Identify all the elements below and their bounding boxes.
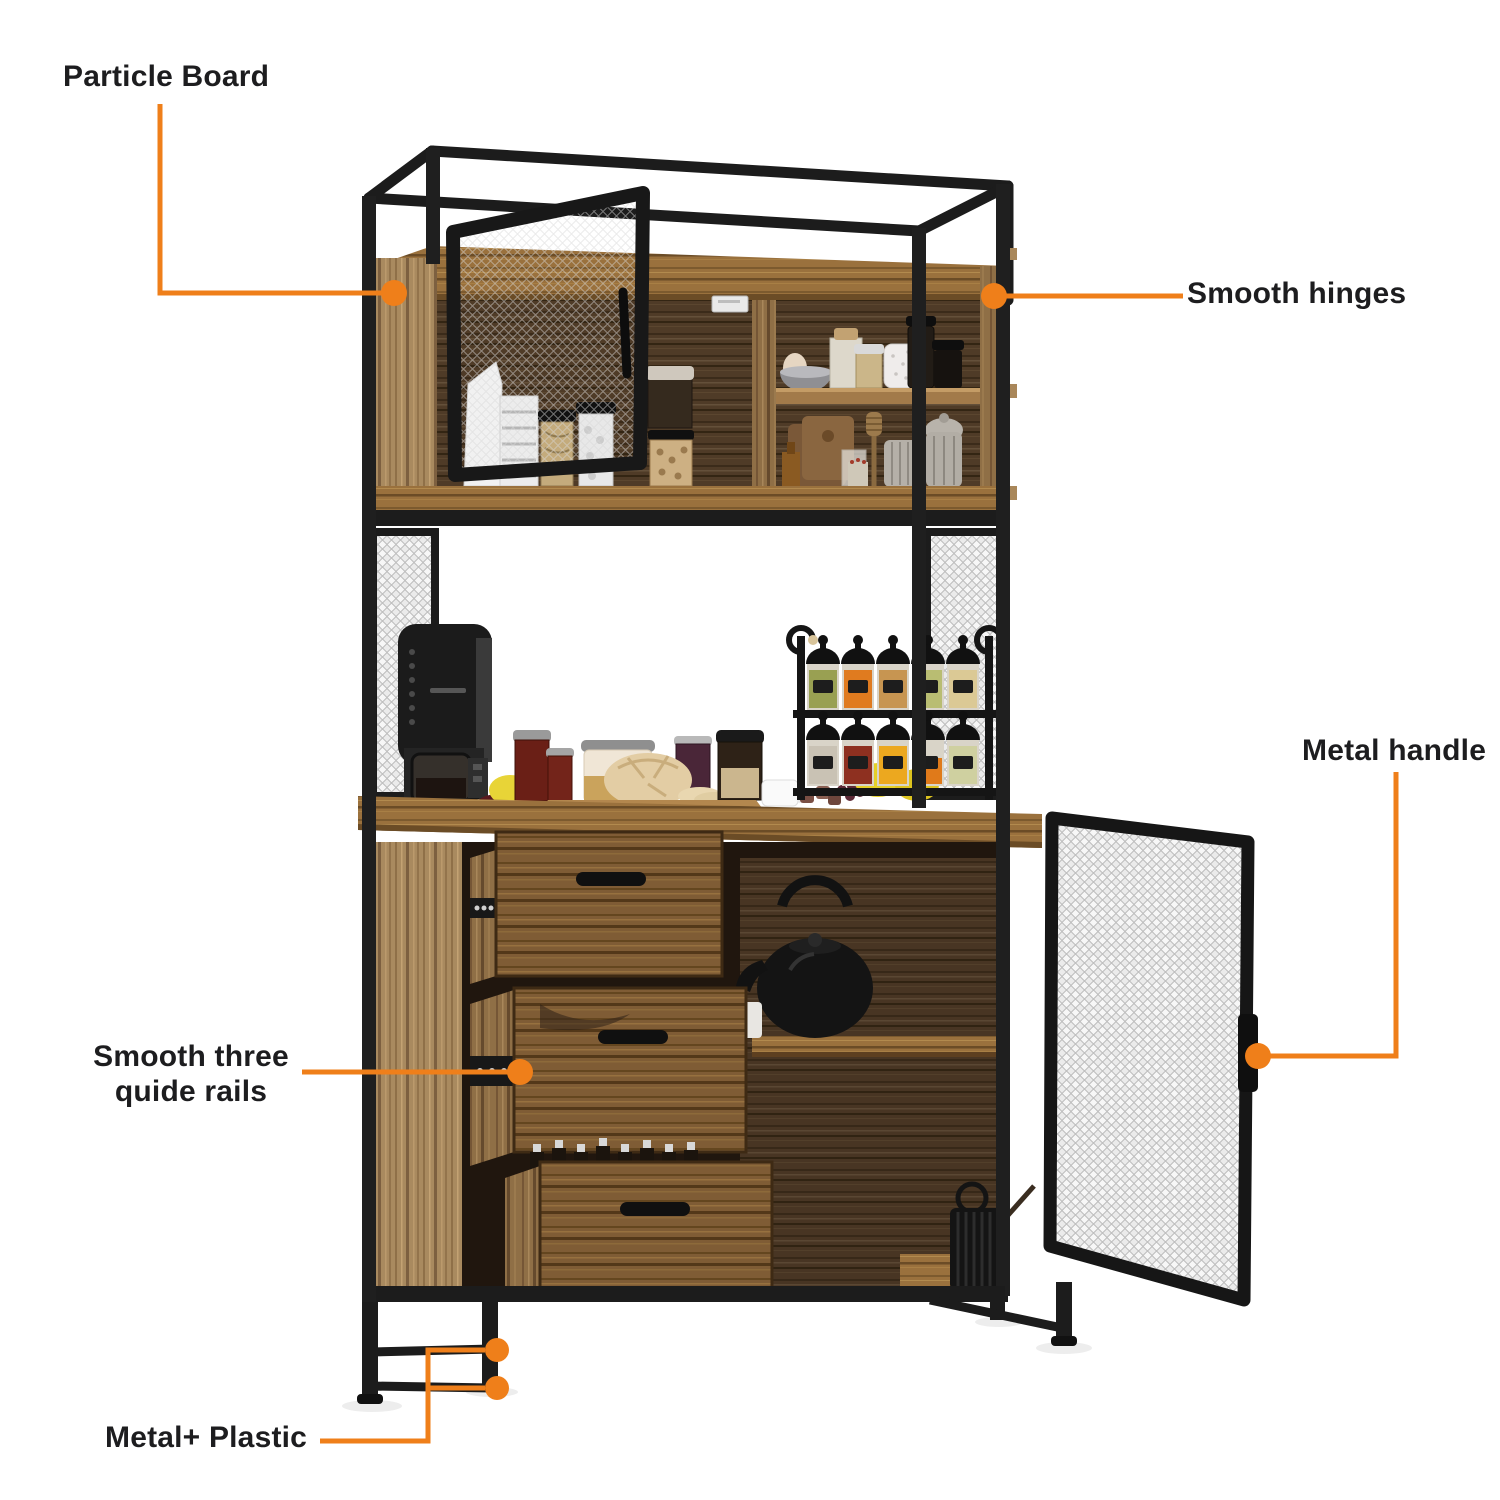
metal-plastic-dot-2 — [485, 1376, 509, 1400]
drawer-3-front — [540, 1162, 772, 1292]
drawer-1 — [470, 832, 722, 984]
product-render — [0, 0, 1500, 1500]
metal-handle-line — [1270, 772, 1396, 1056]
particle-board-dot — [381, 280, 407, 306]
smooth-hinges-dot — [981, 283, 1007, 309]
metal-plastic-dot-1 — [485, 1338, 509, 1362]
callout-label-metal-handle: Metal handle — [1302, 734, 1486, 769]
coffee-maker — [396, 624, 494, 808]
metal-plastic-line — [320, 1350, 485, 1441]
callout-label-metal-plastic: Metal+ Plastic — [105, 1421, 307, 1456]
hutch-divider — [752, 300, 776, 488]
base-left-panel — [362, 842, 462, 1292]
guide-rails-line1: Smooth three — [93, 1040, 289, 1073]
drawer-3-box-side — [505, 1166, 540, 1292]
hinge-hardware — [712, 296, 748, 312]
drawer-1-front — [496, 832, 722, 976]
callout-label-guide-rails: Smooth three quide rails — [80, 1040, 302, 1109]
drawer-3 — [505, 1138, 772, 1292]
spice-rack — [789, 628, 1006, 800]
guide-rails-line2: quide rails — [115, 1075, 267, 1108]
drawer-1-handle — [576, 872, 646, 886]
upper-mesh-door — [453, 193, 643, 475]
particle-board-line — [160, 104, 383, 293]
drawer-3-handle — [620, 1202, 690, 1216]
guide-rails-dot — [507, 1059, 533, 1085]
base-bottom-bar — [362, 1286, 1008, 1302]
upper-door-handle — [623, 292, 627, 374]
callout-label-smooth-hinges: Smooth hinges — [1187, 277, 1406, 312]
lower-mesh-door — [1050, 818, 1258, 1300]
product-annotation-image: Particle Board Smooth hinges Metal handl… — [0, 0, 1500, 1500]
mug — [762, 780, 798, 806]
floor-shadows — [342, 1317, 1092, 1412]
callout-label-particle-board: Particle Board — [63, 60, 269, 95]
metal-handle-dot — [1245, 1043, 1271, 1069]
drawer-2-handle — [598, 1030, 668, 1044]
base-cabinet — [362, 832, 1034, 1302]
